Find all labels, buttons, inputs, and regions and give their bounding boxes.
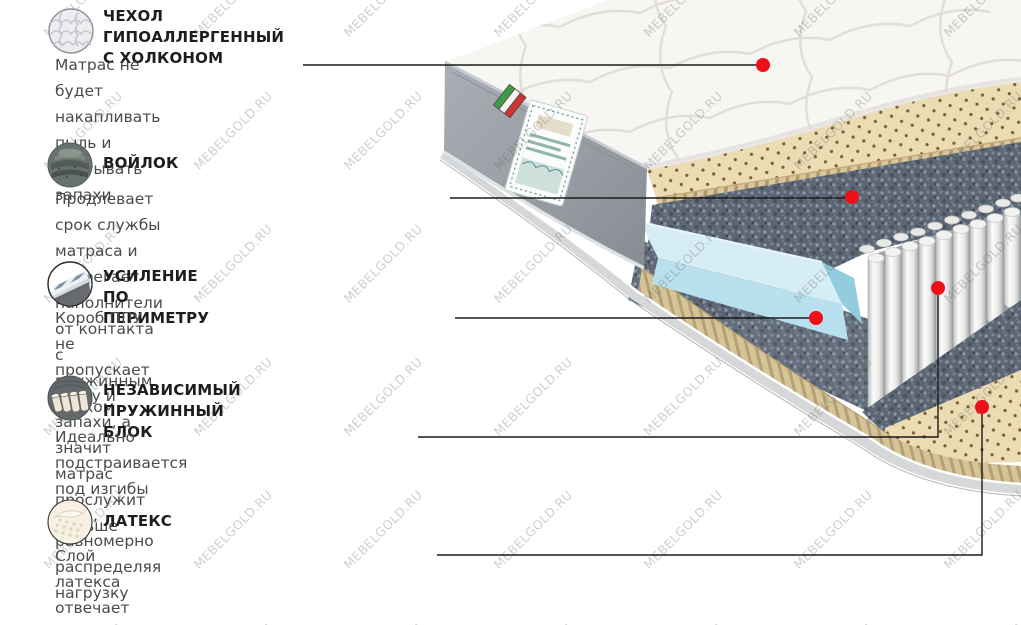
section-description: Слой латекса отвечает за поддержку костн… xyxy=(55,543,148,625)
mattress-infographic: MEBELGOLD.RUMEBELGOLD.RUMEBELGOLD.RUMEBE… xyxy=(0,0,1021,625)
perimeter-foam-icon xyxy=(47,261,93,307)
spring-block-icon xyxy=(47,375,93,421)
section-title: ЛАТЕКС xyxy=(103,511,172,532)
felt-icon xyxy=(47,142,93,188)
section-title: ВОЙЛОК xyxy=(103,153,178,174)
latex-icon xyxy=(47,499,93,545)
quilted-cover-icon xyxy=(48,8,94,54)
